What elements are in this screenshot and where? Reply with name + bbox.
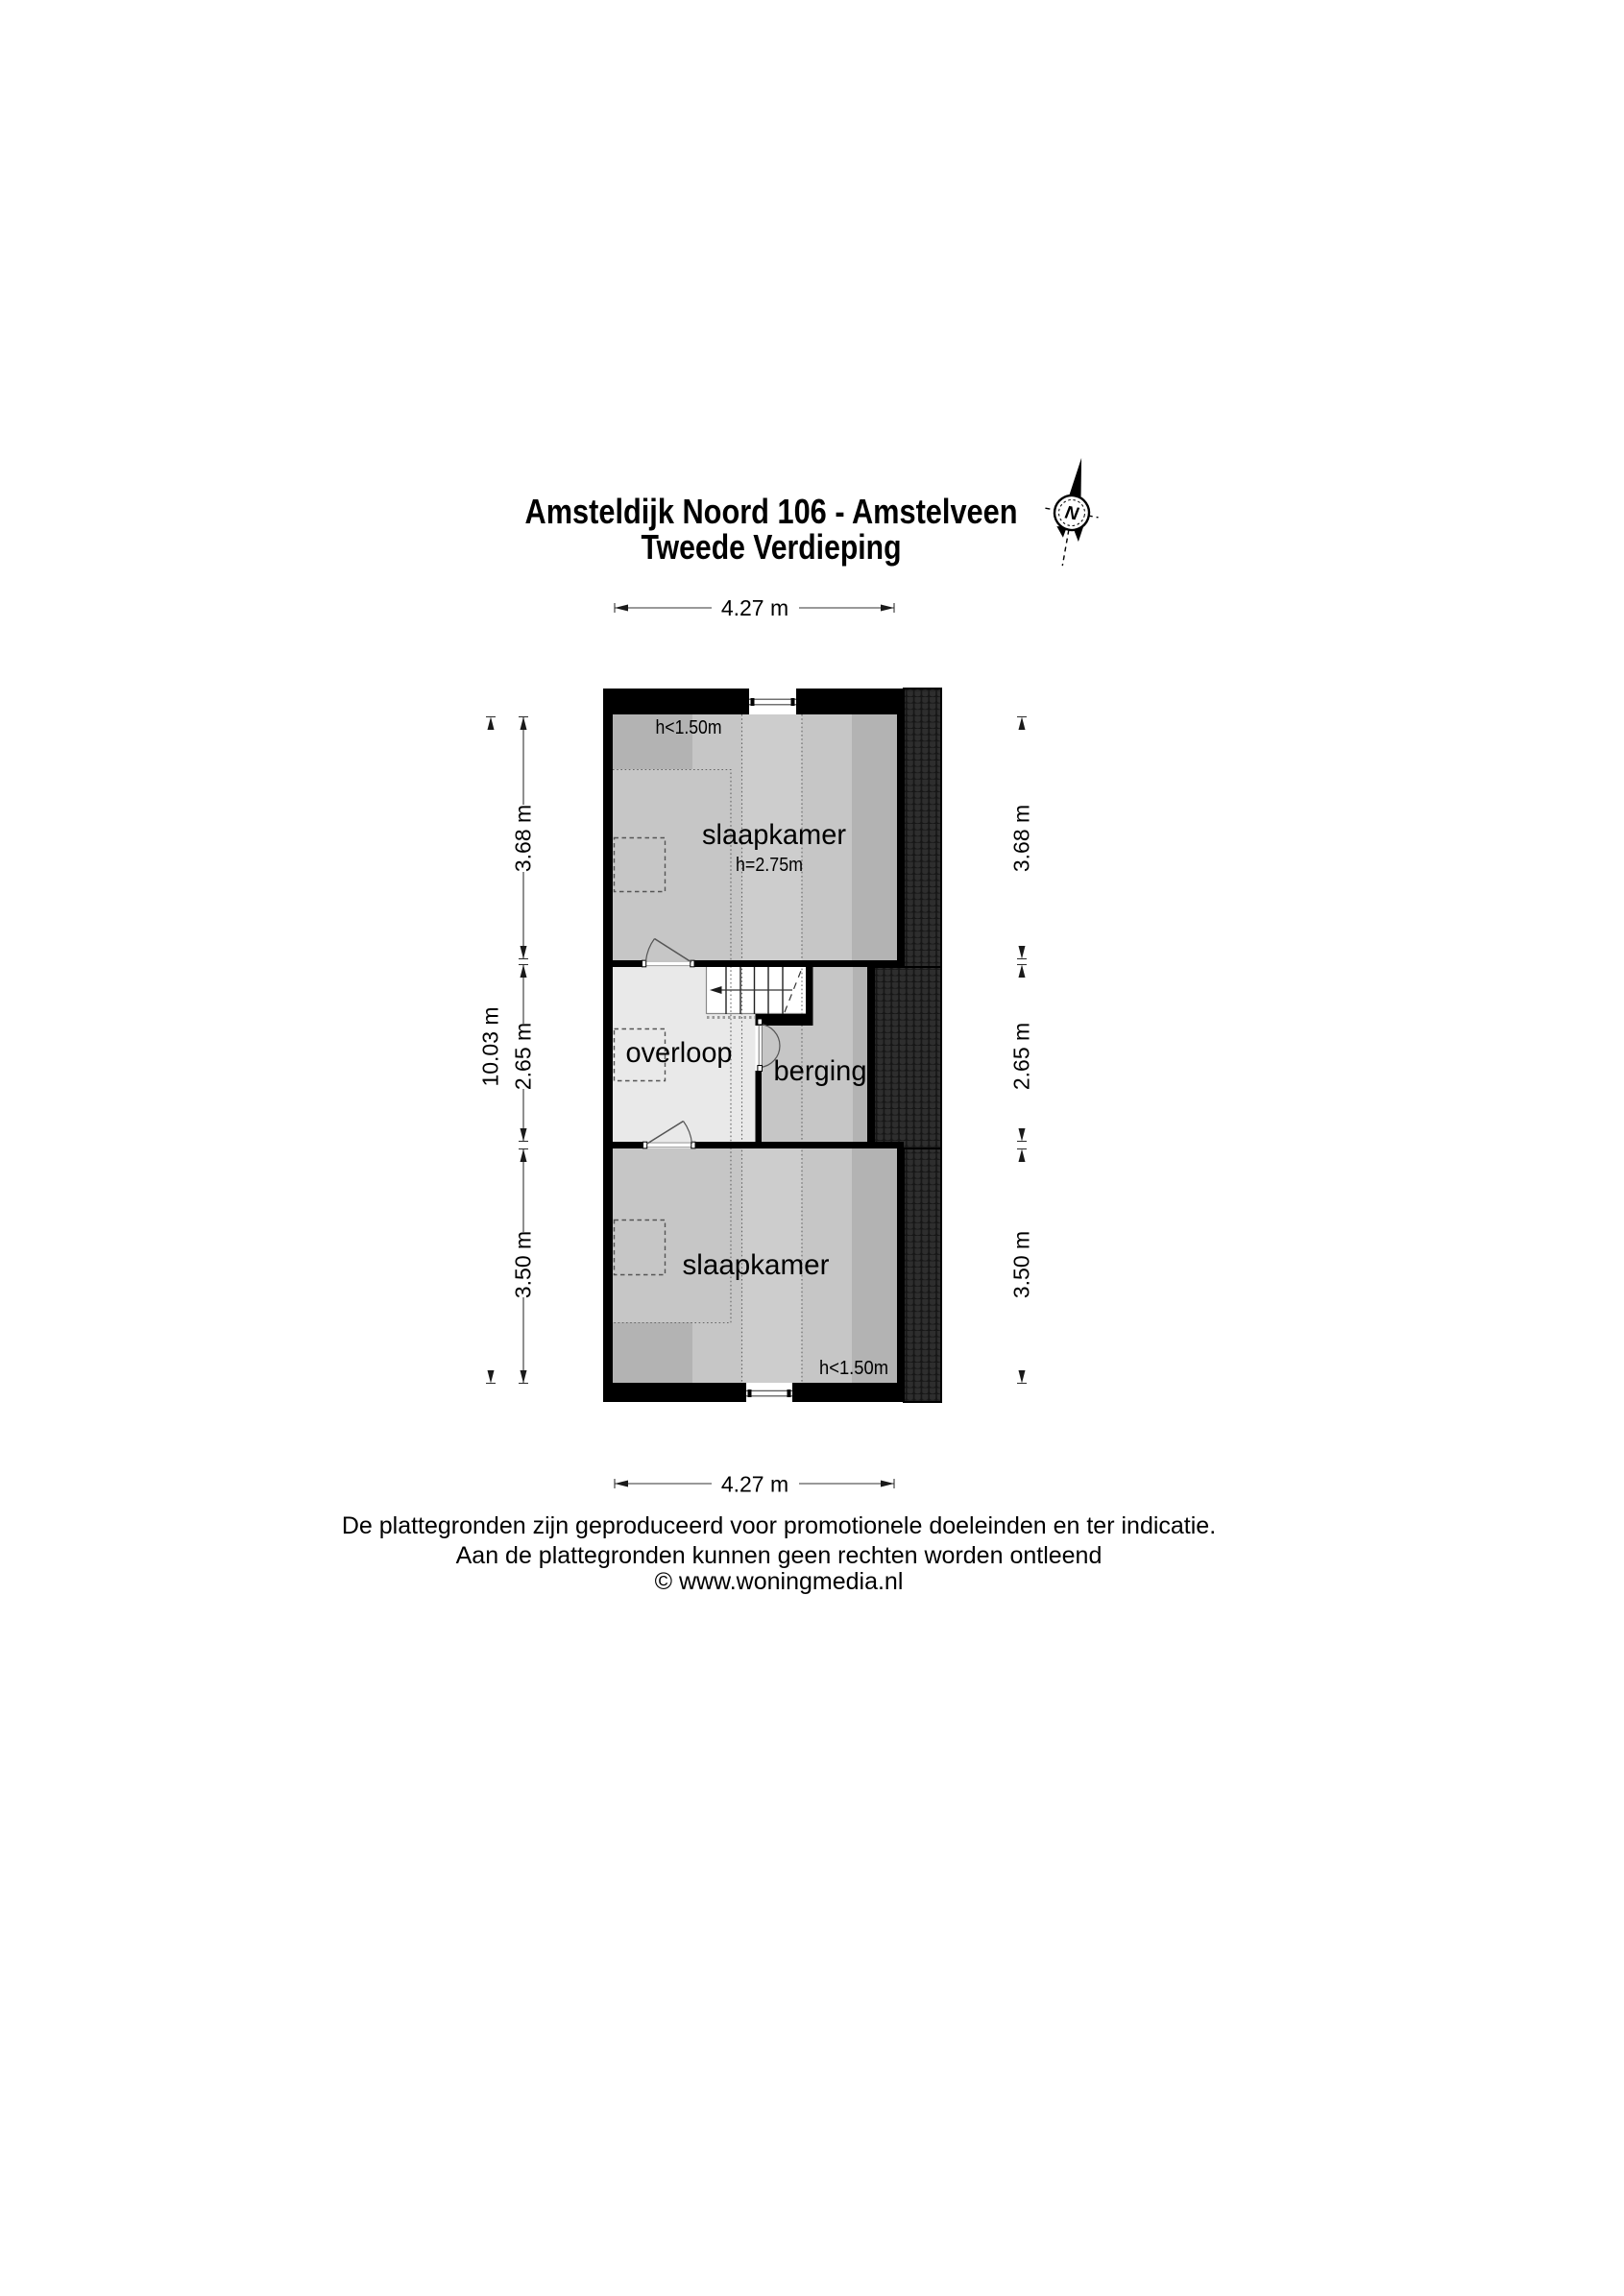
svg-text:4.27 m: 4.27 m [721,1472,788,1497]
svg-text:Amsteldijk Noord 106 - Amstelv: Amsteldijk Noord 106 - Amstelveen [525,492,1018,531]
svg-text:3.50 m: 3.50 m [511,1231,536,1298]
svg-text:slaapkamer: slaapkamer [702,819,846,851]
svg-text:3.68 m: 3.68 m [511,805,536,872]
svg-text:© www.woningmedia.nl: © www.woningmedia.nl [655,1568,904,1595]
svg-text:4.27 m: 4.27 m [721,595,788,620]
svg-text:De plattegronden zijn geproduc: De plattegronden zijn geproduceerd voor … [342,1512,1216,1539]
svg-text:berging: berging [774,1055,867,1087]
svg-text:2.65 m: 2.65 m [1009,1023,1034,1090]
svg-text:h=2.75m: h=2.75m [736,855,803,876]
svg-text:overloop: overloop [626,1037,733,1069]
svg-text:h<1.50m: h<1.50m [819,1358,888,1379]
svg-text:2.65 m: 2.65 m [511,1023,536,1090]
svg-text:h<1.50m: h<1.50m [656,717,722,738]
svg-text:10.03 m: 10.03 m [478,1006,503,1086]
svg-text:Aan de plattegronden kunnen ge: Aan de plattegronden kunnen geen rechten… [456,1542,1103,1569]
svg-text:Tweede Verdieping: Tweede Verdieping [642,527,902,567]
svg-text:3.50 m: 3.50 m [1009,1231,1034,1298]
svg-text:3.68 m: 3.68 m [1009,805,1034,872]
svg-text:slaapkamer: slaapkamer [683,1249,830,1281]
